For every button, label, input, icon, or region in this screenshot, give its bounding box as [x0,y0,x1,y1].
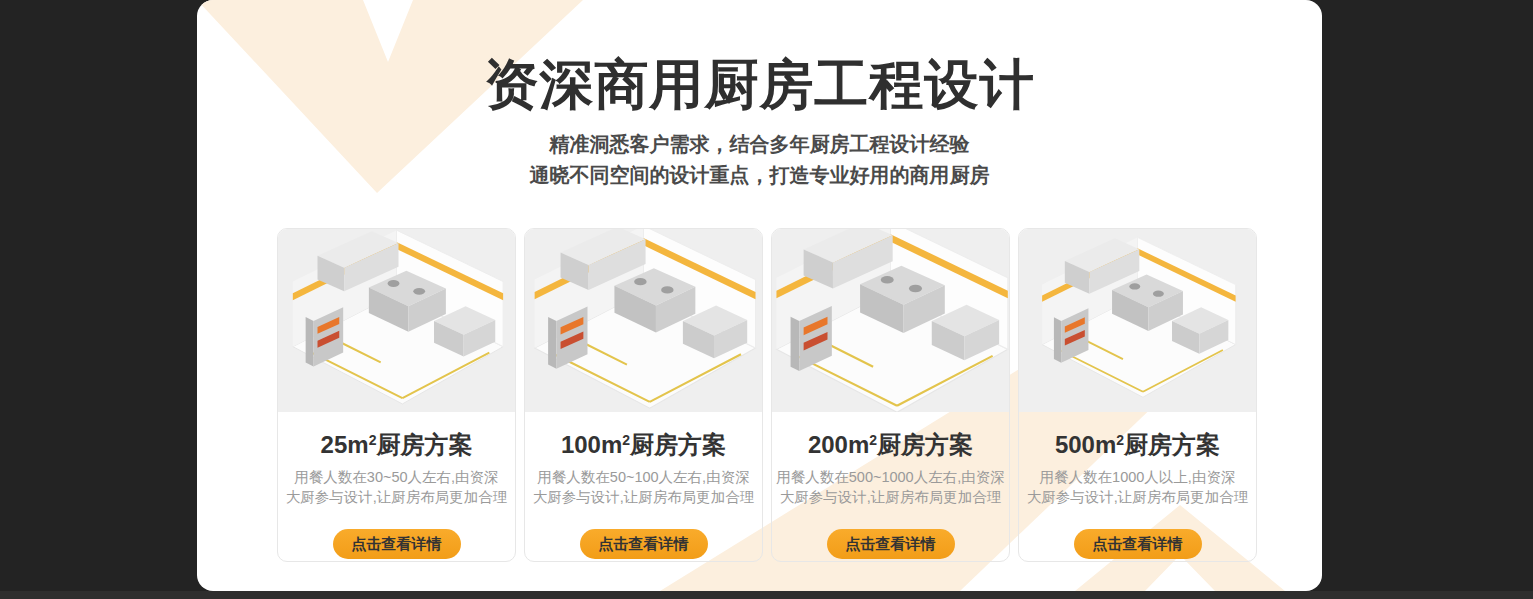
subtitle-line-1: 精准洞悉客户需求，结合多年厨房工程设计经验 [197,129,1322,160]
kitchen-plan-card-500: 500m2厨房方案 用餐人数在1000人以上,由资深 大厨参与设计,让厨房布局更… [1018,228,1257,562]
kitchen-plan-card-200: 200m2厨房方案 用餐人数在500~1000人左右,由资深 大厨参与设计,让厨… [771,228,1010,562]
kitchen-render-image [772,229,1009,412]
plan-title: 25m2厨房方案 [278,425,515,460]
plan-description: 用餐人数在1000人以上,由资深 大厨参与设计,让厨房布局更加合理 [1019,467,1256,507]
plan-description: 用餐人数在500~1000人左右,由资深 大厨参与设计,让厨房布局更加合理 [772,467,1009,507]
plan-title: 100m2厨房方案 [525,425,762,460]
kitchen-render-image [525,229,762,412]
superscript-2: 2 [1116,432,1124,448]
kitchen-render-image [278,229,515,412]
superscript-2: 2 [622,432,630,448]
page-title: 资深商用厨房工程设计 [197,54,1322,114]
section-kitchen-design: 资深商用厨房工程设计 精准洞悉客户需求，结合多年厨房工程设计经验 通晓不同空间的… [0,0,1533,599]
kitchen-plan-card-25: 25m2厨房方案 用餐人数在30~50人左右,由资深 大厨参与设计,让厨房布局更… [277,228,516,562]
plan-title: 200m2厨房方案 [772,425,1009,460]
view-details-button[interactable]: 点击查看详情 [827,529,955,559]
view-details-button[interactable]: 点击查看详情 [580,529,708,559]
plan-description: 用餐人数在50~100人左右,由资深 大厨参与设计,让厨房布局更加合理 [525,467,762,507]
plan-title: 500m2厨房方案 [1019,425,1256,460]
content-panel: 资深商用厨房工程设计 精准洞悉客户需求，结合多年厨房工程设计经验 通晓不同空间的… [197,0,1322,591]
superscript-2: 2 [869,432,877,448]
kitchen-plan-card-100: 100m2厨房方案 用餐人数在50~100人左右,由资深 大厨参与设计,让厨房布… [524,228,763,562]
next-section-edge [0,591,1533,599]
section-header: 资深商用厨房工程设计 精准洞悉客户需求，结合多年厨房工程设计经验 通晓不同空间的… [197,54,1322,191]
view-details-button[interactable]: 点击查看详情 [1074,529,1202,559]
plan-description: 用餐人数在30~50人左右,由资深 大厨参与设计,让厨房布局更加合理 [278,467,515,507]
plan-card-list: 25m2厨房方案 用餐人数在30~50人左右,由资深 大厨参与设计,让厨房布局更… [277,228,1257,562]
subtitle-line-2: 通晓不同空间的设计重点，打造专业好用的商用厨房 [197,160,1322,191]
section-subtitle: 精准洞悉客户需求，结合多年厨房工程设计经验 通晓不同空间的设计重点，打造专业好用… [197,129,1322,191]
kitchen-render-image [1019,229,1256,412]
view-details-button[interactable]: 点击查看详情 [333,529,461,559]
